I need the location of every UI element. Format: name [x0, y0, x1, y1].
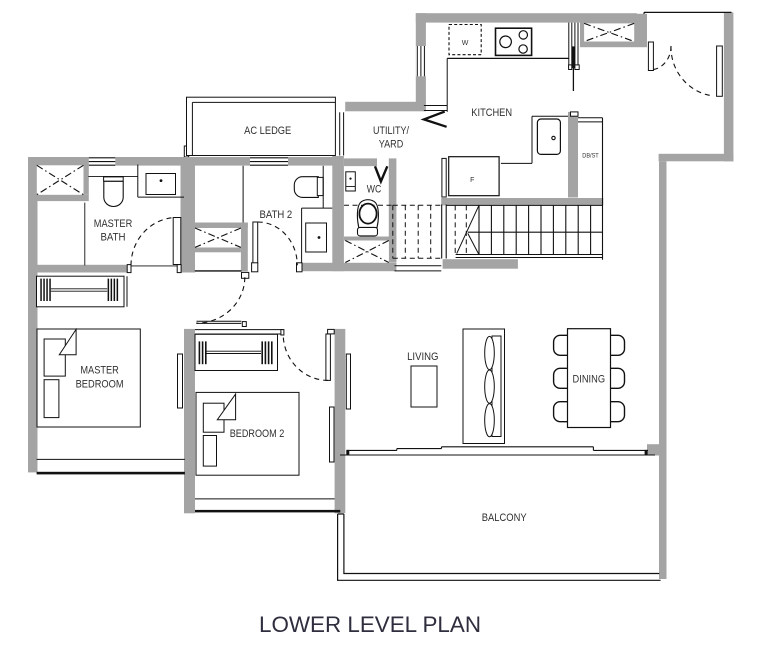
svg-text:W: W: [462, 40, 469, 47]
svg-text:UTILITY/: UTILITY/: [373, 125, 410, 137]
svg-text:DB/ST: DB/ST: [582, 153, 598, 160]
svg-text:DINING: DINING: [573, 374, 606, 386]
svg-text:LIVING: LIVING: [407, 351, 438, 363]
svg-text:AC LEDGE: AC LEDGE: [244, 125, 291, 137]
svg-text:MASTER: MASTER: [80, 365, 119, 377]
svg-text:BEDROOM: BEDROOM: [76, 379, 124, 391]
svg-text:BATH: BATH: [101, 231, 126, 243]
svg-text:BEDROOM 2: BEDROOM 2: [230, 428, 285, 440]
svg-text:KITCHEN: KITCHEN: [471, 107, 512, 119]
svg-text:BATH 2: BATH 2: [260, 209, 293, 221]
svg-text:YARD: YARD: [379, 138, 404, 150]
svg-text:F: F: [470, 177, 474, 184]
svg-text:BALCONY: BALCONY: [482, 512, 527, 524]
svg-text:LOWER LEVEL PLAN: LOWER LEVEL PLAN: [259, 612, 481, 637]
svg-text:MASTER: MASTER: [94, 218, 133, 230]
svg-text:WC: WC: [367, 184, 382, 196]
